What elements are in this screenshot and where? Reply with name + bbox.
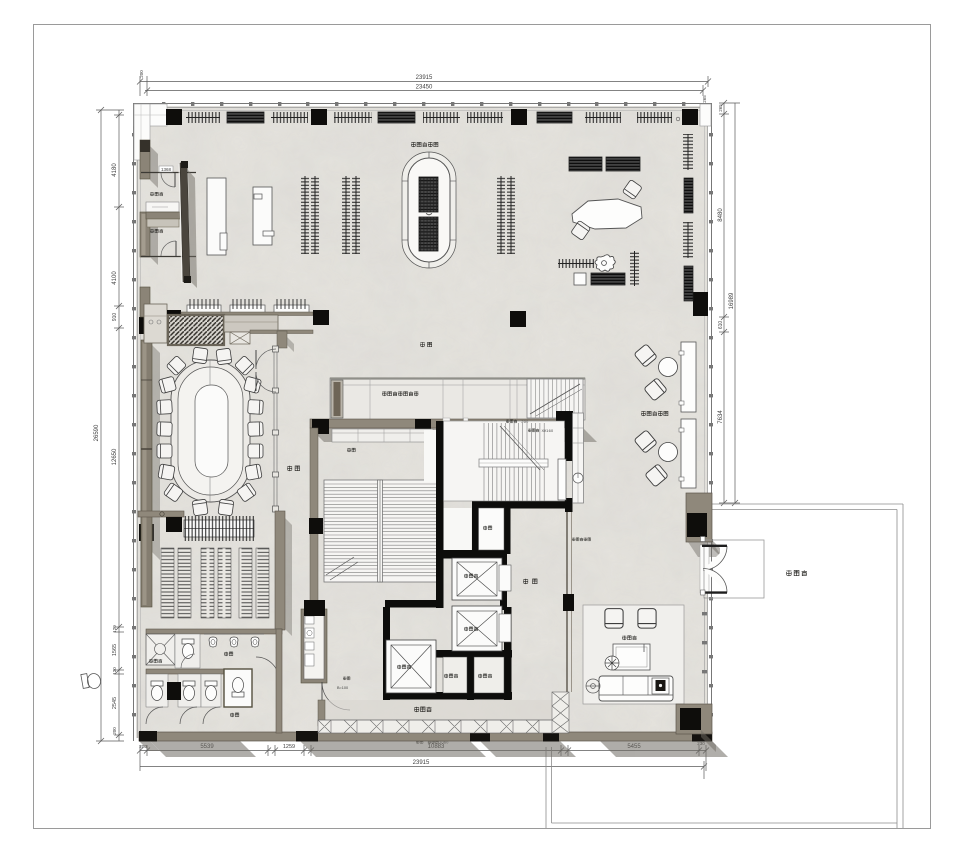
svg-text:200: 200 [139, 70, 144, 78]
svg-text:16989: 16989 [729, 292, 735, 309]
svg-text:120: 120 [112, 667, 117, 675]
svg-text:4180: 4180 [112, 163, 118, 177]
svg-text:2545: 2545 [112, 697, 118, 709]
svg-text:1565: 1565 [112, 644, 118, 656]
svg-text:0: 0 [551, 429, 553, 433]
svg-text:200: 200 [112, 727, 117, 735]
svg-text:23915: 23915 [416, 75, 433, 81]
svg-text:12650: 12650 [112, 448, 118, 465]
svg-text:1259: 1259 [283, 744, 295, 750]
svg-text:23915: 23915 [413, 760, 430, 766]
svg-text:4100: 4100 [112, 271, 118, 285]
svg-text:26590: 26590 [94, 424, 100, 441]
svg-text:23450: 23450 [416, 85, 433, 91]
svg-text:910: 910 [112, 313, 118, 322]
svg-text:610: 610 [718, 321, 724, 330]
svg-text:265: 265 [702, 95, 707, 103]
svg-text:120: 120 [112, 625, 117, 633]
svg-text:7634: 7634 [718, 410, 724, 424]
svg-text:265: 265 [718, 104, 723, 112]
svg-text:8480: 8480 [718, 208, 724, 222]
svg-text:0: 0 [526, 420, 528, 424]
svg-text:B=100: B=100 [337, 686, 348, 690]
svg-text:1368: 1368 [161, 167, 172, 172]
